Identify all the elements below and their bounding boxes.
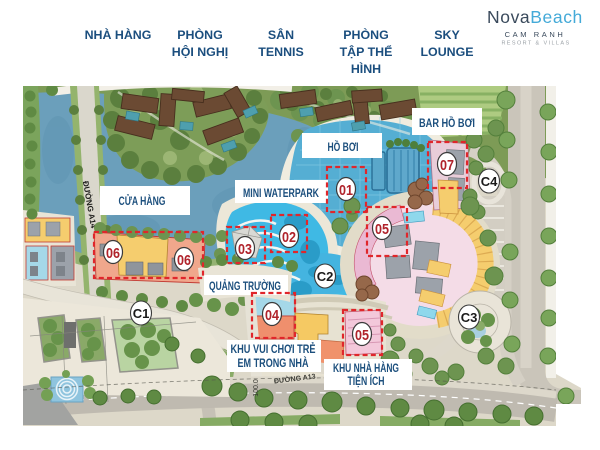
svg-text:PHÒNG: PHÒNG (343, 27, 388, 42)
svg-text:06: 06 (177, 253, 191, 269)
svg-text:BAR HỒ BƠI: BAR HỒ BƠI (419, 115, 475, 130)
svg-text:EM TRONG NHÀ: EM TRONG NHÀ (238, 357, 309, 370)
svg-text:05: 05 (375, 222, 389, 238)
svg-text:05: 05 (355, 328, 369, 344)
svg-text:MINI WATERPARK: MINI WATERPARK (243, 186, 319, 200)
svg-text:NHÀ HÀNG: NHÀ HÀNG (85, 27, 152, 42)
svg-text:02: 02 (282, 230, 296, 246)
svg-text:HÌNH: HÌNH (351, 61, 381, 76)
svg-text:C4: C4 (481, 174, 498, 189)
svg-text:SKY: SKY (434, 28, 460, 42)
svg-text:HỒ BƠI: HỒ BƠI (328, 141, 359, 154)
svg-text:C2: C2 (317, 269, 334, 284)
svg-text:SÂN: SÂN (268, 27, 294, 42)
svg-text:03: 03 (238, 242, 252, 258)
svg-text:C3: C3 (461, 310, 478, 325)
svg-text:TẬP THỂ: TẬP THỂ (340, 44, 393, 59)
svg-text:04: 04 (265, 308, 279, 324)
svg-text:HỘI NGHỊ: HỘI NGHỊ (172, 44, 228, 59)
svg-text:TIỆN ÍCH: TIỆN ÍCH (348, 375, 385, 388)
svg-text:QUẢNG TRƯỜNG: QUẢNG TRƯỜNG (209, 280, 281, 293)
svg-text:TENNIS: TENNIS (258, 45, 303, 59)
svg-text:NovaBeach: NovaBeach (487, 7, 583, 27)
svg-text:07: 07 (440, 158, 454, 174)
svg-text:01: 01 (339, 183, 353, 199)
svg-text:06: 06 (106, 246, 120, 262)
svg-text:KHU NHÀ HÀNG: KHU NHÀ HÀNG (333, 362, 399, 375)
svg-text:100.0: 100.0 (253, 379, 260, 397)
svg-text:CỬA HÀNG: CỬA HÀNG (119, 193, 166, 208)
svg-text:C1: C1 (133, 306, 150, 321)
svg-text:LOUNGE: LOUNGE (420, 45, 473, 59)
svg-text:PHÒNG: PHÒNG (177, 27, 222, 42)
svg-text:KHU VUI CHƠI TRẺ: KHU VUI CHƠI TRẺ (231, 343, 316, 356)
svg-text:RESORT & VILLAS: RESORT & VILLAS (501, 41, 570, 47)
svg-text:CAM RANH: CAM RANH (505, 30, 566, 39)
